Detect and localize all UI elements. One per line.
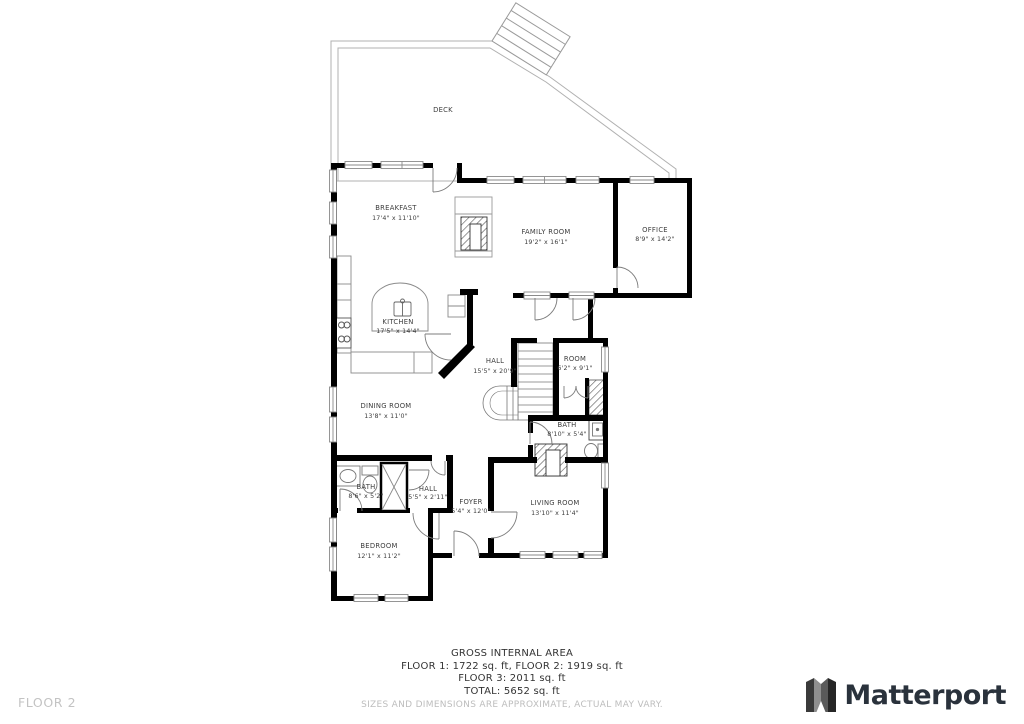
floorplan-page: { "floor_label": "FLOOR 2", "deck_label"…	[0, 0, 1024, 724]
matterport-icon	[806, 678, 836, 712]
room-dims-family-room: 19'2" x 16'1"	[524, 239, 568, 246]
matterport-logo: Matterport	[806, 678, 1006, 712]
floor-label: FLOOR 2	[18, 695, 76, 710]
room-label-room: ROOM	[564, 355, 586, 363]
room-dims-bath-left: 8'6" x 5'2"	[348, 493, 383, 500]
room-label-bath-right: BATH	[557, 421, 576, 429]
room-label-office: OFFICE	[642, 226, 668, 234]
deck-label: DECK	[433, 106, 453, 114]
room-label-family-room: FAMILY ROOM	[521, 228, 570, 236]
fireplace-living-icon	[535, 444, 567, 476]
room-dims-office: 8'9" x 14'2"	[635, 236, 674, 243]
room-label-dining-room: DINING ROOM	[361, 402, 412, 410]
room-dims-dining-room: 13'8" x 11'0"	[364, 413, 408, 420]
room-dims-living-room: 13'10" x 11'4"	[531, 510, 579, 517]
floor-plan: DECK BREAKFAST 17'4" x 11'10" FAMILY ROO…	[0, 0, 1024, 724]
matterport-wordmark: Matterport	[844, 680, 1006, 711]
room-dims-foyer: 5'4" x 12'0"	[451, 508, 490, 515]
shower-icon	[381, 463, 407, 511]
closet-block	[589, 380, 605, 415]
room-label-bath-left: BATH	[356, 483, 375, 491]
room-dims-hall-small: 5'5" x 2'11"	[408, 494, 447, 501]
room-dims-kitchen: 17'5" x 14'4"	[376, 328, 420, 335]
walls	[331, 163, 692, 601]
room-label-hall: HALL	[486, 357, 504, 365]
room-label-kitchen: KITCHEN	[382, 318, 413, 326]
room-label-hall-small: HALL	[419, 485, 437, 493]
room-dims-room: 6'2" x 9'1"	[557, 365, 592, 372]
area-line-1: FLOOR 1: 1722 sq. ft, FLOOR 2: 1919 sq. …	[0, 661, 1024, 674]
room-dims-hall: 15'5" x 20'9"	[473, 368, 517, 375]
stairs-icon	[483, 343, 553, 420]
room-label-living-room: LIVING ROOM	[531, 499, 580, 507]
room-dims-breakfast: 17'4" x 11'10"	[372, 215, 420, 222]
room-dims-bath-right: 8'10" x 5'4"	[547, 431, 586, 438]
area-title: GROSS INTERNAL AREA	[0, 648, 1024, 661]
room-label-breakfast: BREAKFAST	[375, 204, 417, 212]
room-label-bedroom: BEDROOM	[360, 542, 397, 550]
bath-right-fixtures	[585, 419, 607, 459]
fireplace-breakfast-icon	[455, 197, 492, 257]
room-dims-bedroom: 12'1" x 11'2"	[357, 553, 401, 560]
deck-outline	[331, 41, 676, 181]
room-label-foyer: FOYER	[459, 498, 482, 506]
